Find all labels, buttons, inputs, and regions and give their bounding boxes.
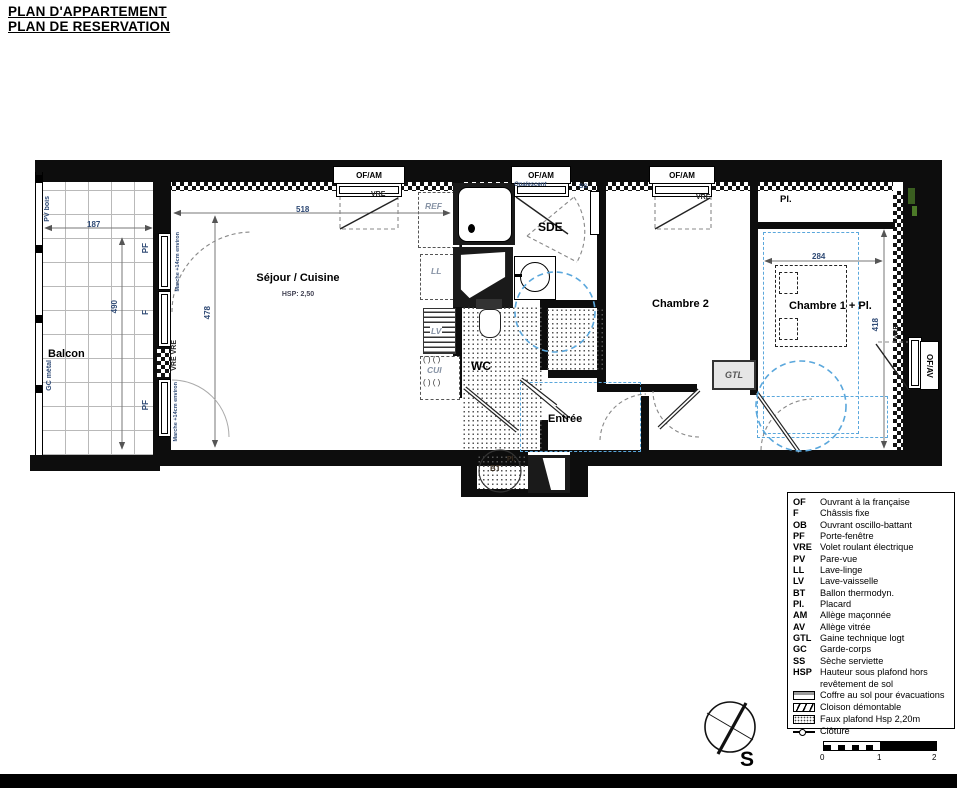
gc-metal-label: GC métal [46, 360, 53, 391]
legend-abbr: VRE [793, 542, 820, 553]
bed-pillow [779, 318, 798, 340]
legend-desc: Garde-corps [820, 644, 950, 655]
legend-desc: Volet roulant électrique [820, 542, 950, 553]
window-ofam-1-sym [336, 183, 402, 197]
faux-plafond-hall [546, 308, 603, 372]
legend-abbr: AM [793, 610, 820, 621]
legend-abbr: Pl. [793, 599, 820, 610]
legend-desc: Allège vitrée [820, 622, 950, 633]
wall-placard [758, 222, 895, 229]
legend-desc: Faux plafond Hsp 2,20m [820, 714, 920, 725]
window-ofam-1: OF/AM [333, 166, 405, 184]
entree-label: Entrée [548, 413, 582, 425]
bottom-bar [0, 774, 957, 788]
wc-label: WC [471, 359, 491, 373]
legend-abbr: OF [793, 497, 820, 508]
scale-tick-2: 2 [932, 753, 936, 762]
sejour-label: Séjour / Cuisine [248, 272, 348, 284]
gtl-label: GTL [725, 370, 743, 380]
sejour-hsp-label: HSP: 2,50 [248, 291, 348, 298]
wall-right [903, 160, 942, 466]
ll-label: LL [431, 266, 441, 276]
lv-label: LV [430, 326, 442, 336]
green-accent [908, 188, 915, 204]
legend-desc: Porte-fenêtre [820, 531, 950, 542]
placard-top-label: Pl. [780, 194, 792, 205]
legend-desc: Ouvrant oscillo-battant [820, 520, 950, 531]
legend-abbr: GC [793, 644, 820, 655]
bt-label: BT [490, 464, 501, 473]
scale-tick-1: 1 [877, 753, 881, 762]
pf-top-label: PF [141, 243, 150, 253]
dim-chambre1-w: 284 [812, 252, 825, 261]
green-accent [912, 206, 917, 216]
scale-bar [823, 741, 937, 751]
vre-right-label: VRE [893, 325, 900, 339]
dim-sejour-h: 478 [203, 306, 212, 319]
title-line-1: PLAN D'APPARTEMENT [8, 4, 170, 19]
window-pf-bottom [158, 379, 171, 437]
window-f-mid [158, 291, 171, 347]
opalescent-label: Opalescent [514, 182, 546, 188]
legend-desc: Châssis fixe [820, 508, 950, 519]
wall-sde-south [540, 300, 605, 308]
legend-abbr: LV [793, 576, 820, 587]
dim-balcon-w: 187 [87, 220, 100, 229]
wall-sejour-west-hatch [157, 349, 170, 377]
title-line-2: PLAN DE RESERVATION [8, 19, 170, 34]
scale-tick-0: 0 [820, 753, 824, 762]
wall-top [35, 160, 940, 182]
window-pf-top [158, 233, 171, 290]
legend-abbr: GTL [793, 633, 820, 644]
f-mid-label: F [141, 310, 150, 315]
legend-abbr: F [793, 508, 820, 519]
legend-desc: Allège maçonnée [820, 610, 950, 621]
marche-top-label: Marche +14cm environ [175, 232, 181, 291]
towel-radiator [590, 191, 600, 235]
legend-abbr: AV [793, 622, 820, 633]
legend-desc: Gaine technique logt [820, 633, 950, 644]
wall-entree-east [641, 396, 649, 452]
burners-row2: ( ) ( ) [423, 378, 440, 387]
shower-tray [458, 187, 512, 242]
legend-desc: Hauteur sous plafond hors revêtement de … [820, 667, 950, 690]
legend-desc: Coffre au sol pour évacuations [820, 690, 944, 701]
marche-bottom-label: Marche +14cm environ [173, 382, 179, 441]
burners-row1: ( ) ( ) [423, 355, 440, 364]
bed-pillow [779, 272, 798, 294]
window-ofav: OF/AV [920, 341, 939, 390]
chambre2-label: Chambre 2 [652, 298, 709, 310]
legend-desc: Sèche serviette [820, 656, 950, 667]
chambre1-label: Chambre 1 + Pl. [789, 300, 872, 312]
faux-plafond-bt [477, 455, 528, 489]
dim-chambre1-h: 418 [871, 318, 880, 331]
dim-sejour-w: 518 [296, 205, 309, 214]
page-title: PLAN D'APPARTEMENT PLAN DE RESERVATION [8, 4, 170, 34]
legend-desc: Placard [820, 599, 950, 610]
placard-bt-label: Pl. [507, 456, 516, 463]
legend-desc: Lave-vaisselle [820, 576, 950, 587]
faux-plafond-icon [793, 715, 815, 724]
pf-bottom-label: PF [141, 400, 150, 410]
floor-plan-page: PLAN D'APPARTEMENT PLAN DE RESERVATION [0, 0, 957, 788]
ss-label: SS [579, 183, 588, 190]
vre-window1-label: VRE [371, 191, 385, 198]
shower-drain-icon [468, 224, 475, 233]
cloison-icon [793, 703, 815, 712]
legend-abbr: LL [793, 565, 820, 576]
legend-abbr: PV [793, 554, 820, 565]
sde-label: SDE [538, 220, 563, 234]
legend-box: OFOuvrant à la française FChâssis fixe O… [787, 492, 955, 729]
washbasin-tap-icon [514, 274, 522, 277]
toilet-tank-icon [476, 299, 502, 309]
coffre-icon [793, 691, 815, 700]
wall-balcony-bottom [30, 455, 160, 471]
balcon-label: Balcon [48, 348, 108, 360]
legend-desc: Lave-linge [820, 565, 950, 576]
compass-south-label: S [740, 748, 754, 772]
dim-balcon-h: 490 [110, 300, 119, 313]
balcony-railing [35, 172, 43, 455]
legend-desc: Cloison démontable [820, 702, 901, 713]
legend-desc: Pare-vue [820, 554, 950, 565]
legend-abbr: HSP [793, 667, 820, 690]
legend-abbr: PF [793, 531, 820, 542]
toilet-bowl-icon [479, 309, 501, 338]
ref-label: REF [425, 201, 442, 211]
legend-desc: Ouvrant à la française [820, 497, 950, 508]
blue-zone-chambre1-b [757, 396, 888, 438]
vre-window3-label: VRE [696, 194, 710, 201]
cloture-icon [793, 731, 815, 733]
window-ofam-3: OF/AM [649, 166, 715, 184]
cui-label: CUI [427, 365, 442, 375]
legend-abbr: OB [793, 520, 820, 531]
vre-vre-label: VRE VRE [171, 340, 178, 371]
wall-right-hatch [893, 191, 903, 450]
washbasin-bowl-icon [520, 262, 550, 292]
legend-desc: Ballon thermodyn. [820, 588, 950, 599]
pv-bois-label: PV bois [44, 196, 51, 222]
legend-abbr: BT [793, 588, 820, 599]
legend-abbr: SS [793, 656, 820, 667]
legend-desc: Clôture [820, 726, 850, 737]
